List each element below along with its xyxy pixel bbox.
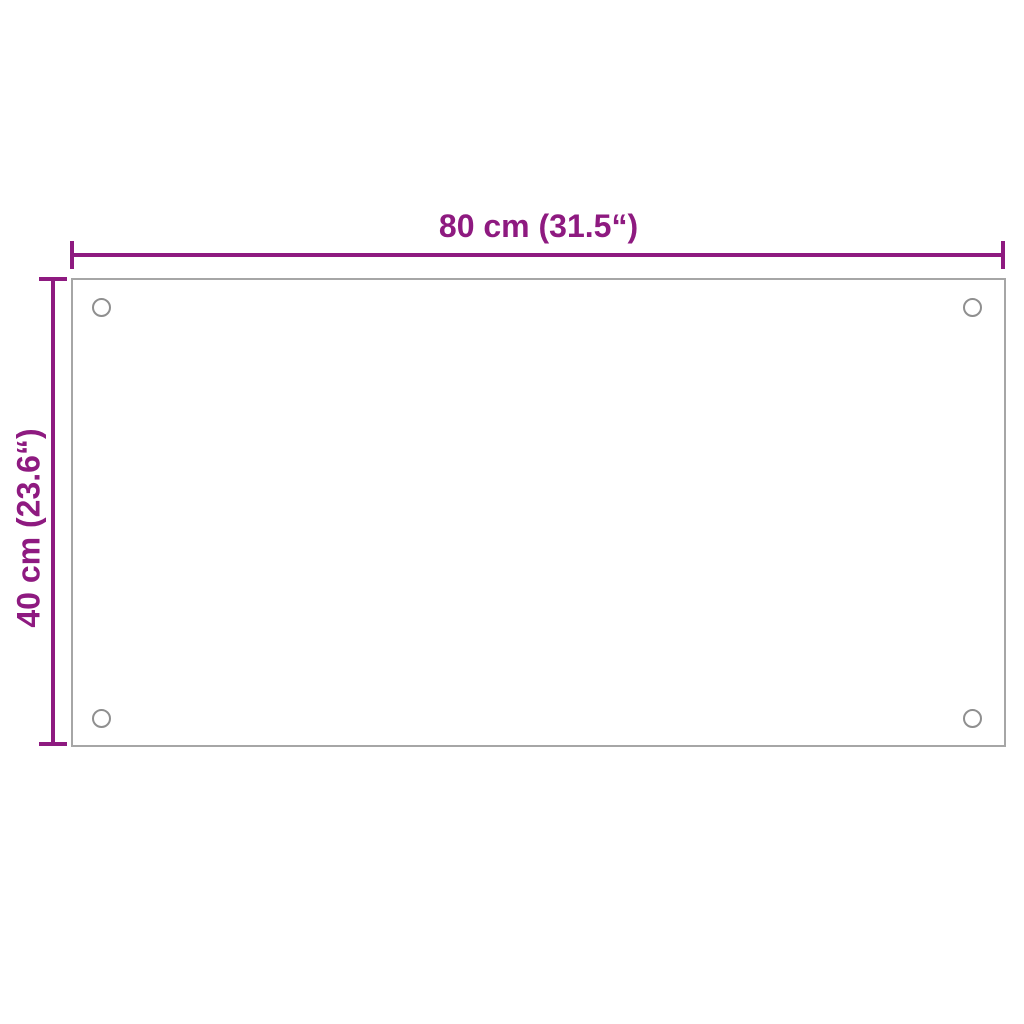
height-dimension-label: 40 cm (23.6“): [11, 428, 48, 627]
height-dimension-cap-top: [39, 277, 67, 281]
mounting-hole-top-left: [92, 298, 111, 317]
mounting-hole-bottom-left: [92, 709, 111, 728]
width-dimension-line: [72, 253, 1005, 257]
height-dimension-line: [51, 279, 55, 746]
panel-outline: [71, 278, 1006, 747]
width-dimension-cap-left: [70, 241, 74, 269]
width-dimension-label: 80 cm (31.5“): [72, 208, 1005, 245]
mounting-hole-bottom-right: [963, 709, 982, 728]
width-dimension-cap-right: [1001, 241, 1005, 269]
product-dimension-diagram: 80 cm (31.5“) 40 cm (23.6“): [0, 0, 1024, 1024]
mounting-hole-top-right: [963, 298, 982, 317]
height-dimension-cap-bottom: [39, 742, 67, 746]
